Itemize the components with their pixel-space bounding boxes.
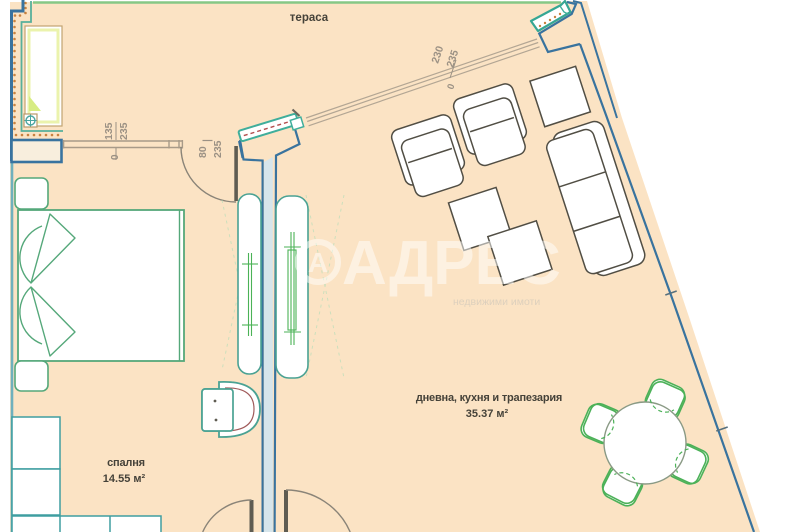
svg-text:АДРЕС: АДРЕС	[342, 229, 561, 298]
svg-text:недвижими имоти: недвижими имоти	[453, 296, 540, 308]
svg-text:А: А	[308, 247, 328, 278]
svg-text:235: 235	[118, 122, 130, 140]
svg-text:235: 235	[212, 140, 224, 158]
svg-text:0: 0	[110, 154, 121, 160]
svg-text:80: 80	[197, 146, 209, 158]
svg-text:14.55 м²: 14.55 м²	[103, 473, 146, 485]
svg-text:35.37 м²: 35.37 м²	[466, 408, 509, 420]
svg-text:дневна, кухня и трапезария: дневна, кухня и трапезария	[416, 392, 562, 404]
svg-text:тераса: тераса	[290, 12, 329, 24]
svg-text:135: 135	[103, 122, 115, 140]
svg-text:спалня: спалня	[107, 457, 145, 469]
